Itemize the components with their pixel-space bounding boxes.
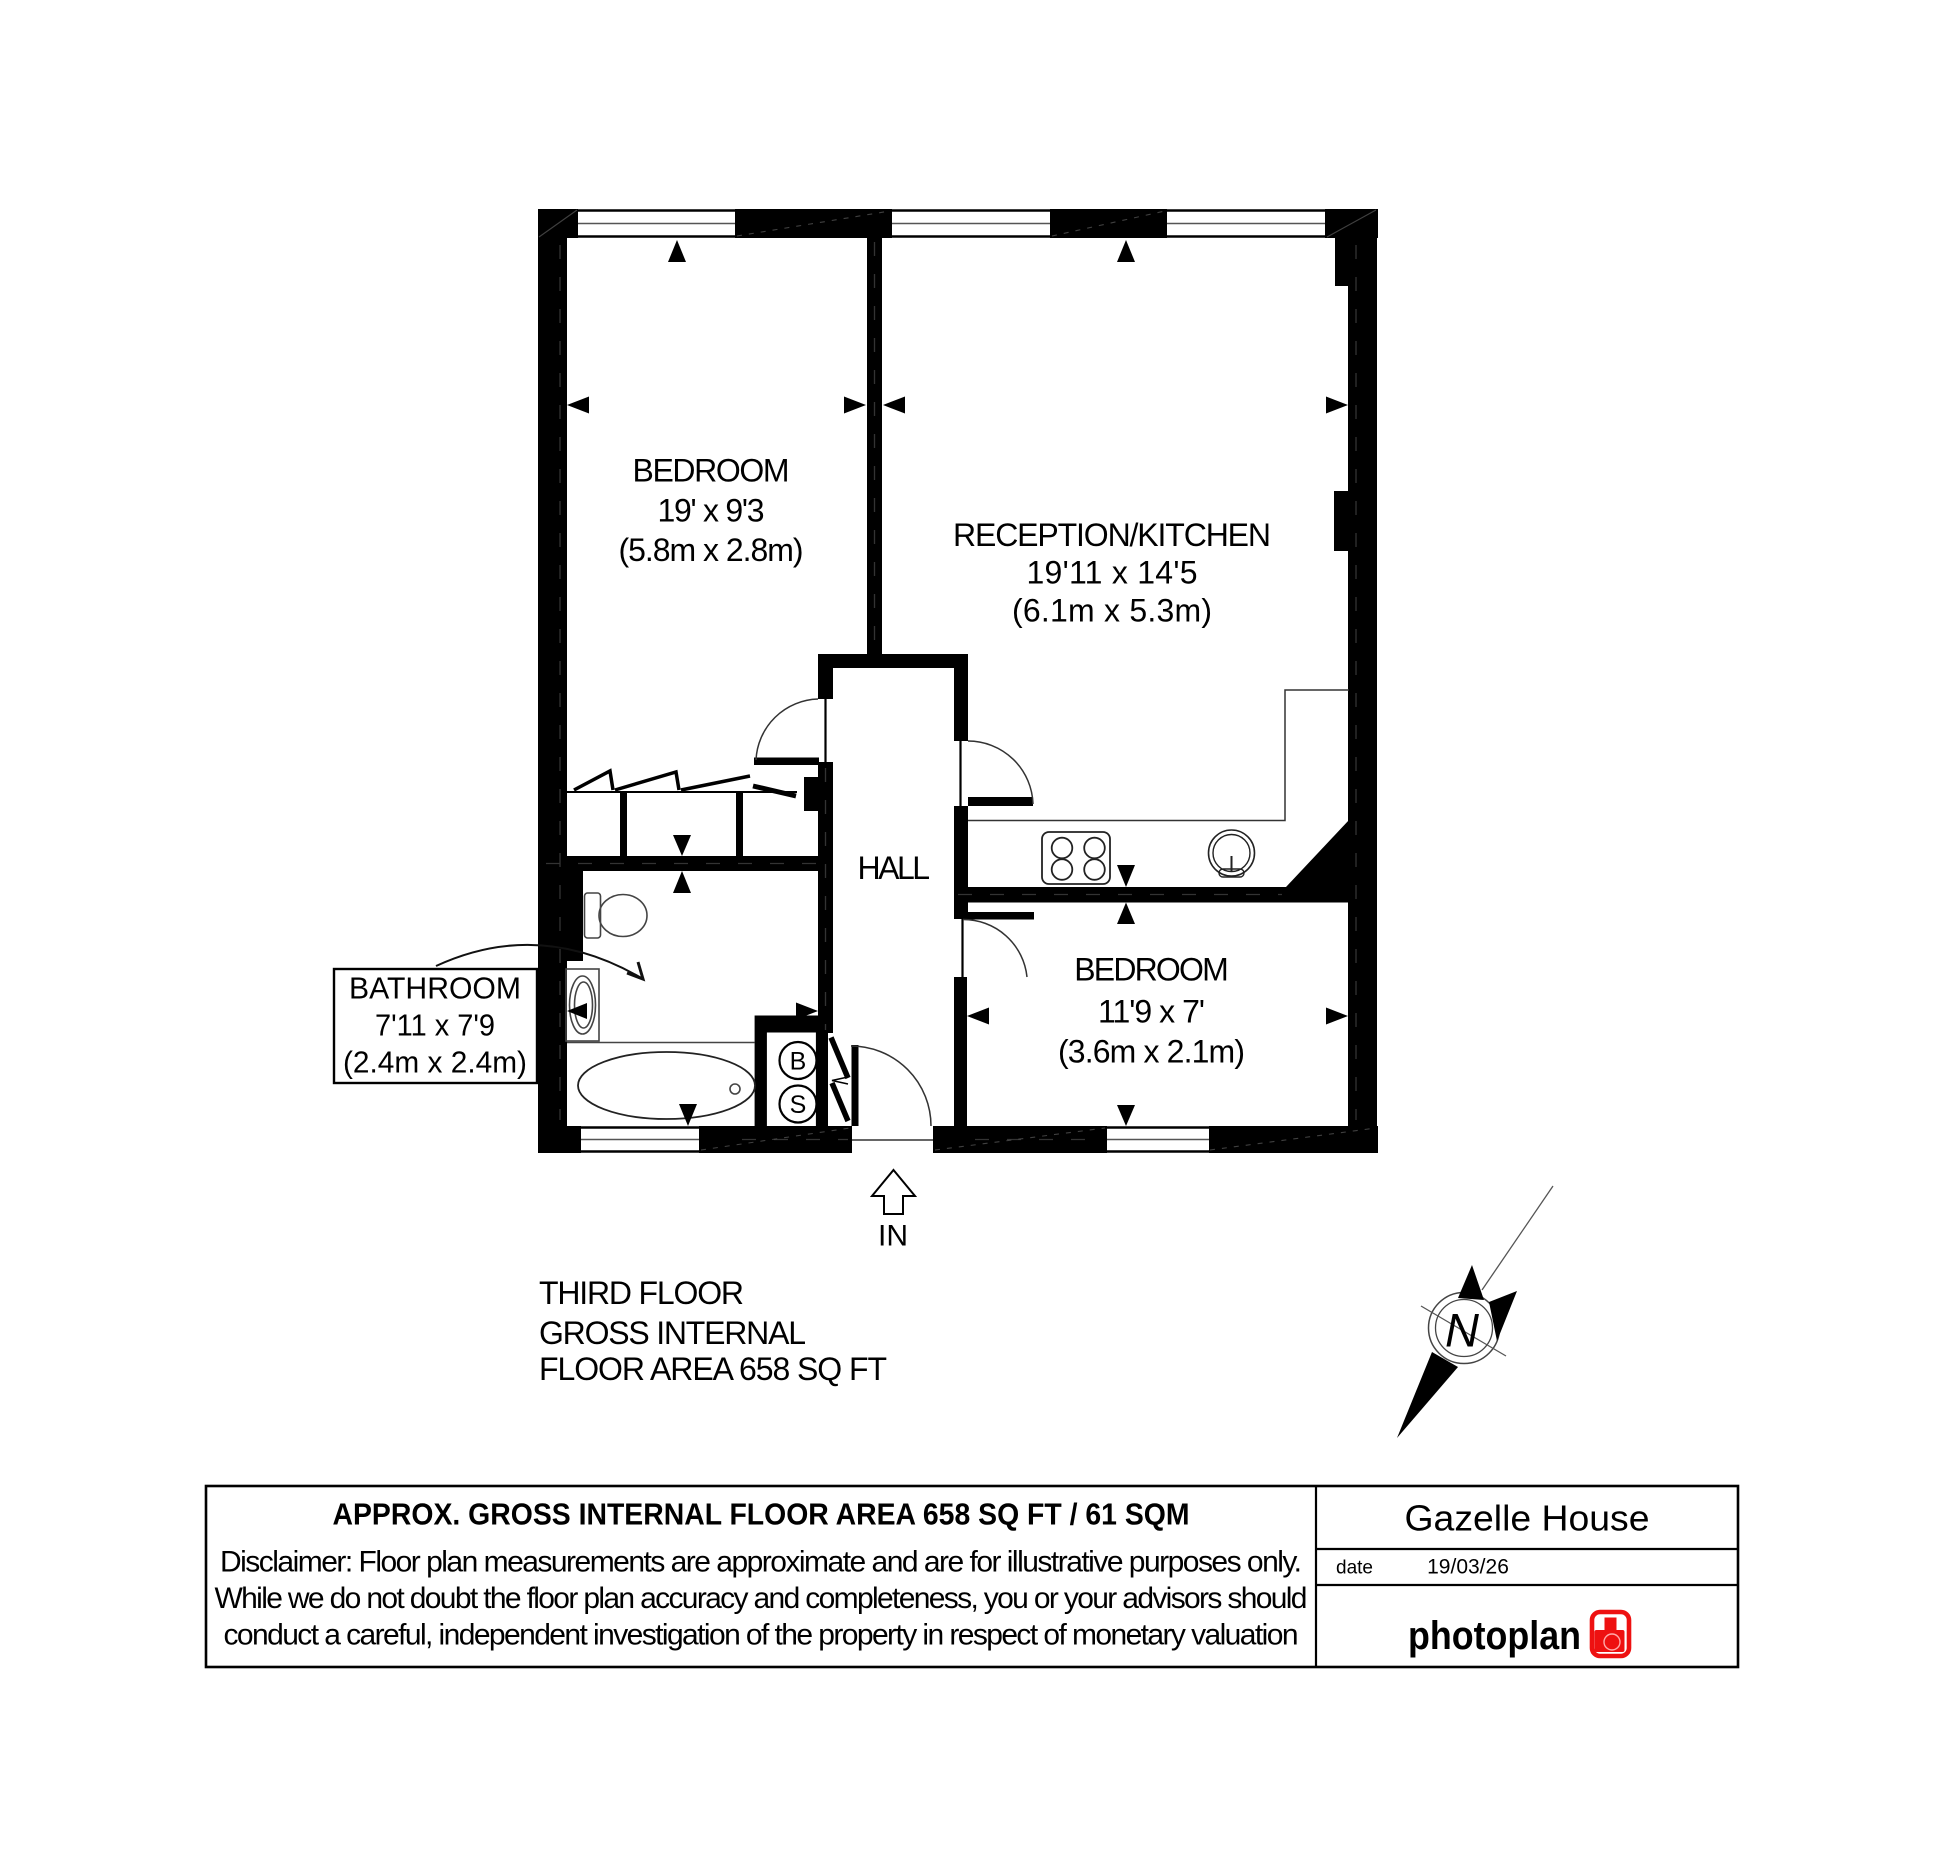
svg-text:IN: IN <box>878 1220 908 1253</box>
svg-text:(3.6m x 2.1m): (3.6m x 2.1m) <box>1058 1034 1245 1070</box>
svg-text:While we do not doubt the floo: While we do not doubt the floor plan acc… <box>215 1582 1308 1615</box>
svg-text:(5.8m x 2.8m): (5.8m x 2.8m) <box>619 532 804 568</box>
svg-text:(2.4m x 2.4m): (2.4m x 2.4m) <box>343 1045 527 1080</box>
svg-text:19' x 9'3: 19' x 9'3 <box>658 493 765 529</box>
svg-text:7'11 x 7'9: 7'11 x 7'9 <box>375 1008 495 1043</box>
svg-text:BATHROOM: BATHROOM <box>349 971 521 1006</box>
svg-text:GROSS INTERNAL: GROSS INTERNAL <box>539 1315 806 1351</box>
svg-text:THIRD FLOOR: THIRD FLOOR <box>539 1275 744 1311</box>
svg-text:N: N <box>1445 1304 1479 1357</box>
svg-text:S: S <box>790 1091 807 1119</box>
svg-text:HALL: HALL <box>858 850 931 886</box>
svg-text:BEDROOM: BEDROOM <box>1074 952 1229 988</box>
svg-text:11'9 x 7': 11'9 x 7' <box>1098 994 1205 1030</box>
svg-text:RECEPTION/KITCHEN: RECEPTION/KITCHEN <box>953 517 1271 553</box>
svg-text:19/03/26: 19/03/26 <box>1427 1556 1509 1579</box>
svg-text:(6.1m x 5.3m): (6.1m x 5.3m) <box>1012 593 1212 629</box>
svg-text:date: date <box>1336 1558 1373 1579</box>
svg-text:BEDROOM: BEDROOM <box>633 453 790 489</box>
svg-text:photoplan: photoplan <box>1408 1614 1581 1658</box>
svg-text:Disclaimer: Floor plan measure: Disclaimer: Floor plan measurements are … <box>220 1546 1302 1579</box>
svg-text:B: B <box>790 1048 807 1076</box>
svg-text:19'11 x 14'5: 19'11 x 14'5 <box>1027 555 1198 591</box>
svg-text:Gazelle House: Gazelle House <box>1405 1498 1650 1539</box>
svg-text:APPROX. GROSS INTERNAL FLOOR A: APPROX. GROSS INTERNAL FLOOR AREA 658 SQ… <box>333 1497 1190 1532</box>
svg-text:FLOOR AREA 658 SQ FT: FLOOR AREA 658 SQ FT <box>539 1351 887 1387</box>
svg-text:conduct a careful, independent: conduct a careful, independent investiga… <box>224 1619 1299 1652</box>
